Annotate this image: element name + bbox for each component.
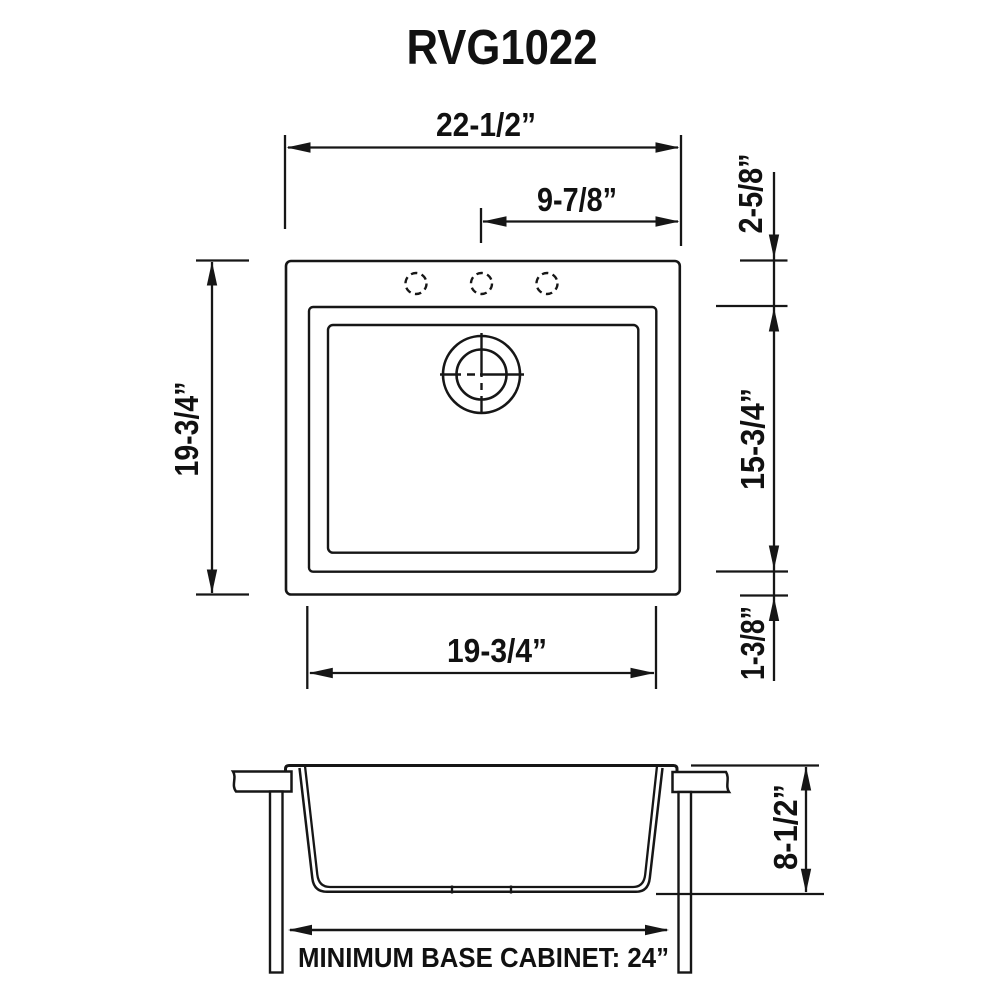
svg-text:MINIMUM BASE CABINET: 24”: MINIMUM BASE CABINET: 24” [298,942,669,973]
svg-text:1-3/8”: 1-3/8” [734,606,771,680]
svg-text:22-1/2”: 22-1/2” [436,106,536,143]
svg-text:15-3/4”: 15-3/4” [734,388,771,490]
svg-text:19-3/4”: 19-3/4” [168,382,205,477]
svg-text:9-7/8”: 9-7/8” [537,181,617,218]
svg-text:RVG1022: RVG1022 [407,21,598,75]
svg-text:2-5/8”: 2-5/8” [732,154,769,234]
svg-text:19-3/4”: 19-3/4” [447,632,547,669]
svg-text:8-1/2”: 8-1/2” [767,784,804,870]
